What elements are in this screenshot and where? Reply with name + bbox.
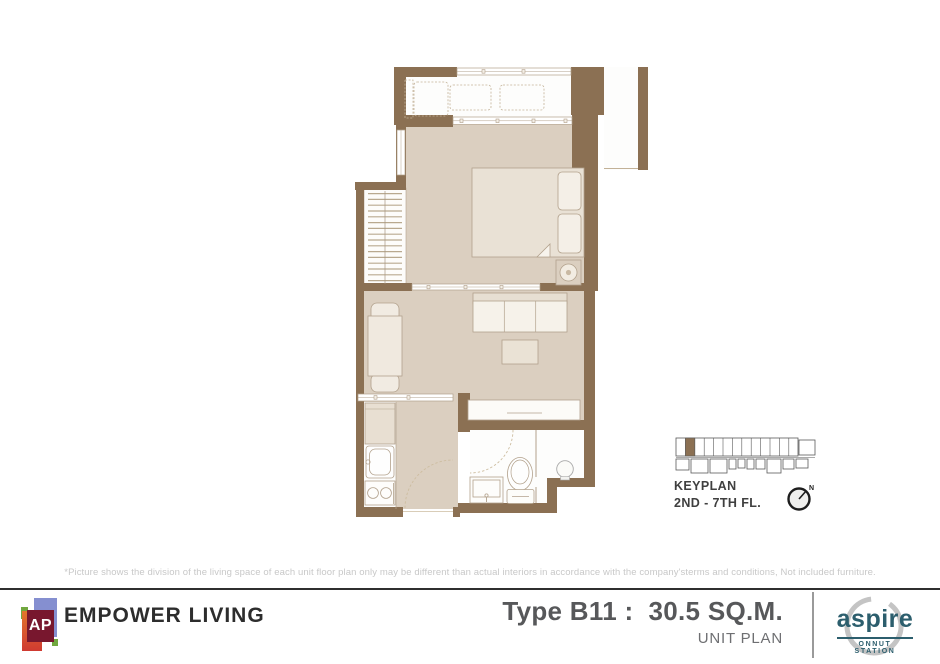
water-heater <box>557 461 574 478</box>
balcony-railing <box>457 68 571 75</box>
keyplan-floors: 2ND - 7TH FL. <box>674 496 761 510</box>
title-block: Type B11 : 30.5 SQ.M. UNIT PLAN <box>502 596 783 647</box>
dining-table <box>368 316 402 376</box>
dining-chair-2 <box>371 374 399 392</box>
ap-logo-text: AP <box>29 617 52 635</box>
stove <box>365 481 395 505</box>
pillow-1 <box>558 172 581 210</box>
sofa <box>473 301 567 332</box>
footer-vertical-divider <box>812 592 814 658</box>
bedroom-window <box>397 130 405 175</box>
pillow-2 <box>558 214 581 253</box>
compass-icon: N <box>784 480 818 514</box>
coffee-table <box>502 340 538 364</box>
keyplan-title: KEYPLAN <box>674 479 737 493</box>
corridor-floor <box>396 402 458 509</box>
ap-logo: AP <box>21 598 59 652</box>
ac-ledge-floor <box>604 67 638 170</box>
bedroom-sliding-door <box>412 284 540 290</box>
compass-north-label: N <box>809 485 814 492</box>
kitchen-furniture <box>365 402 396 509</box>
tv-cabinet <box>468 400 580 420</box>
keyplan: KEYPLAN2ND - 7TH FL. N <box>668 430 830 522</box>
unit-type-title: Type B11 : 30.5 SQ.M. <box>502 596 783 627</box>
balcony-sliding-door <box>453 117 572 125</box>
kitchen-sliding-door <box>358 394 453 401</box>
disclaimer-text: *Picture shows the division of the livin… <box>0 567 940 578</box>
brochure-page: KEYPLAN2ND - 7TH FL. N *Picture shows th… <box>0 0 940 664</box>
unit-plan-label: UNIT PLAN <box>502 630 783 647</box>
keyplan-highlighted-unit <box>685 438 694 456</box>
floorplan <box>352 60 652 530</box>
aspire-logo: aspire ONNUT STATION <box>820 592 930 660</box>
aspire-name: aspire <box>820 605 930 634</box>
brand-name: EMPOWER LIVING <box>64 604 265 628</box>
keyplan-building <box>668 430 830 476</box>
ap-logo-mark: AP <box>27 610 54 642</box>
footer: AP EMPOWER LIVING Type B11 : 30.5 SQ.M. … <box>0 590 940 664</box>
keyplan-label: KEYPLAN2ND - 7TH FL. <box>674 478 761 512</box>
aspire-location: ONNUT STATION <box>837 637 913 655</box>
